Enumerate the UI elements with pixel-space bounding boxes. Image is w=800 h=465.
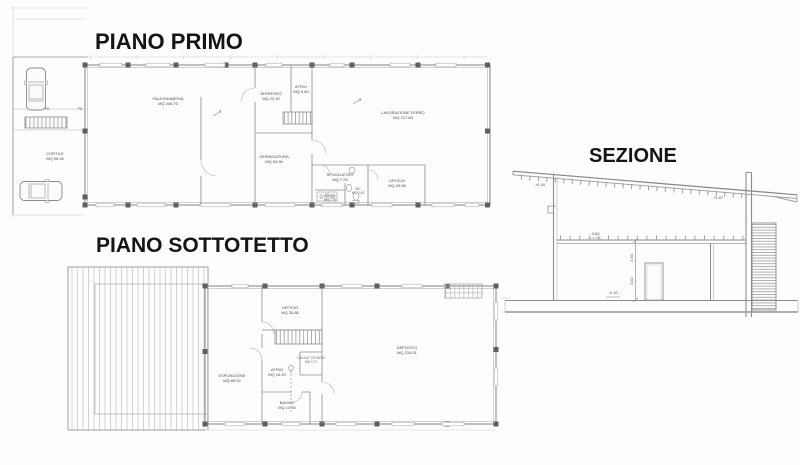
room-label-ufficio-area: MQ 25.06: [388, 183, 406, 188]
room-label-falegnameria-area: MQ 248.70: [158, 101, 179, 106]
room-label-bagno-area: MQ 10.55: [278, 405, 296, 410]
dim-interior-height: 3.40: [629, 253, 634, 262]
room-label-cortile-area: MQ 98.06: [46, 156, 64, 161]
parked-car-top: [25, 68, 48, 110]
room-label-locale-tecnico-area: MQ 7.07: [305, 360, 317, 364]
level-ceiling: -0.60: [590, 231, 600, 236]
skylight-grid: [445, 284, 482, 298]
room-label-esposizione-area: MQ 85.52: [223, 378, 241, 383]
piano-sottotetto-title: PIANO SOTTOTETTO: [96, 234, 309, 257]
room-label-ufficio2-area: MQ 26.88: [281, 310, 299, 315]
dim-wall-height: 3.82: [629, 276, 634, 285]
room-label-atrio-area: MQ 9.80: [293, 89, 309, 94]
level-floor: -0.10: [608, 290, 618, 295]
room-label-verniciatura-area: MQ 54.90: [265, 159, 283, 164]
roof-hatch-area: [68, 267, 208, 430]
floorplan-drawing: PIANO PRIMO PB PB CORTILE MQ 98.06: [0, 0, 800, 465]
scanned-floorplan-sheet: PIANO PRIMO PB PB CORTILE MQ 98.06: [0, 0, 800, 465]
parking-spot-label: PB: [78, 107, 82, 111]
room-label-wc-area: MQ 2.48: [352, 191, 364, 195]
shutter-hatch: [752, 223, 776, 310]
level-eave-right: +3.87: [713, 195, 724, 200]
room-label-ingresso-area: MQ 22.40: [262, 96, 280, 101]
piano-primo-title: PIANO PRIMO: [95, 29, 243, 54]
room-label-docce-area: MQ 7.78: [324, 198, 336, 202]
room-label-lavorazione-area: MQ 217.80: [393, 115, 414, 120]
room-label-atrio2-area: MQ 16.20: [268, 372, 286, 377]
room-label-spogliatoio-area: MQ 7.25: [332, 177, 348, 182]
parking-spot-label: PB: [45, 107, 49, 111]
room-label-deposito-area: MQ 216.01: [397, 350, 418, 355]
section-door: [645, 263, 663, 300]
parked-car-bottom: [20, 180, 62, 203]
sezione-title: SEZIONE: [589, 145, 677, 167]
level-eave-left: +5.40: [535, 182, 546, 187]
